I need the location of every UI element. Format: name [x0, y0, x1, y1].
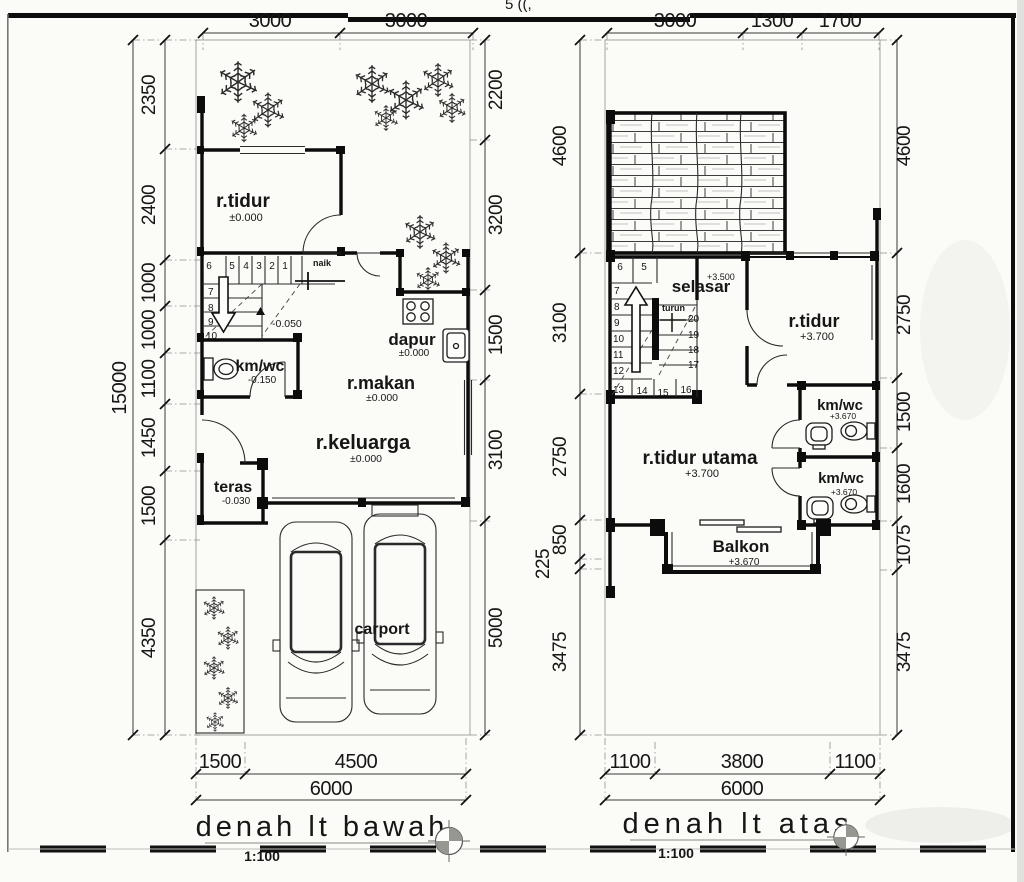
room-level: -0.150	[248, 375, 277, 386]
cropped-top-text: 5 ((,	[505, 0, 532, 13]
stair-step-number: 13	[613, 385, 625, 396]
dim-label: 3000	[385, 10, 428, 32]
room-label: r.tidur	[788, 311, 839, 331]
stair-step-number: 10	[206, 331, 218, 342]
dim-label: 1450	[139, 418, 160, 458]
stair-step-number: 9	[208, 317, 214, 328]
room-label: dapur	[388, 330, 436, 349]
dim-label-total-width: 6000	[721, 778, 764, 800]
room-level: ±0.000	[366, 392, 398, 404]
stair-step-number: 5	[229, 261, 235, 272]
stair-step-number: 19	[688, 330, 700, 341]
dim-label: 1700	[819, 10, 862, 32]
dim-label: 225	[533, 549, 554, 579]
stair-step-number: 6	[206, 261, 212, 272]
room-level: +3.670	[729, 557, 760, 568]
dim-label: 3000	[249, 10, 292, 32]
scanned-floor-plan-sheet: 5 ((, 3000	[0, 0, 1024, 882]
room-level: ±0.000	[229, 212, 263, 224]
stair-step-number: 1	[282, 261, 288, 272]
room-level: +3.670	[831, 487, 858, 497]
scan-smudge	[920, 240, 1010, 420]
dim-label: 3000	[654, 10, 697, 32]
room-label: carport	[354, 621, 410, 638]
stair-step-number: 11	[613, 350, 624, 361]
room-level: ±0.000	[350, 453, 382, 465]
dim-label-total-width: 6000	[310, 778, 353, 800]
dim-label: 1075	[894, 525, 915, 565]
scan-edge-shadow	[1017, 0, 1024, 882]
stair-step-number: 5	[641, 262, 647, 273]
plan-title: denah lt bawah	[196, 811, 449, 843]
dim-label: 4600	[550, 126, 571, 166]
dim-label: 4500	[335, 751, 378, 773]
stair-step-number: 15	[657, 388, 669, 399]
dim-label: 5000	[486, 608, 507, 648]
dim-label: 1100	[834, 751, 875, 773]
stair-step-number: 3	[256, 261, 262, 272]
stair-step-number: 7	[208, 287, 214, 298]
room-label: km/wc	[818, 470, 864, 487]
plan-scale: 1:100	[658, 845, 694, 861]
stair-step-number: 12	[613, 366, 625, 377]
room-label: km/wc	[236, 358, 285, 375]
dim-label: 1600	[894, 464, 915, 504]
room-label: r.keluarga	[316, 432, 411, 454]
room-level: +3.700	[685, 468, 719, 480]
stair-step-number: 6	[617, 262, 623, 273]
dim-label: 2750	[550, 437, 571, 477]
stair-step-number: 7	[614, 286, 620, 297]
dim-label: 3100	[486, 430, 507, 470]
room-level: ±0.000	[399, 348, 430, 359]
roof-hatch	[608, 113, 785, 253]
dim-label: 3200	[486, 195, 507, 235]
dim-label: 1100	[609, 751, 650, 773]
room-level: +3.700	[800, 331, 834, 343]
room-label: teras	[214, 479, 252, 496]
dim-label: 1500	[486, 315, 507, 355]
stair-step-number: 10	[613, 334, 625, 345]
plan-scale: 1:100	[244, 848, 280, 864]
dim-label: 3475	[550, 632, 571, 672]
dim-label: 1000	[139, 263, 160, 303]
level-label: -0.050	[272, 318, 302, 330]
dim-label: 2350	[139, 75, 160, 115]
dim-label: 3800	[721, 751, 764, 773]
room-label: Balkon	[713, 537, 770, 556]
stair-step-number: 18	[688, 345, 700, 356]
dim-label: 1500	[139, 486, 160, 526]
stair-direction-label: turun	[662, 303, 685, 313]
room-level: -0.030	[222, 496, 251, 507]
stair-step-number: 2	[269, 261, 275, 272]
room-level: +3.670	[830, 411, 857, 421]
dim-label: 3100	[550, 303, 571, 343]
dim-label: 2400	[139, 185, 160, 225]
dim-label: 1300	[751, 10, 794, 32]
room-label: r.tidur utama	[642, 448, 758, 469]
stair-step-number: 17	[688, 360, 700, 371]
floor-plan-drawing: 5 ((, 3000	[0, 0, 1024, 882]
stair-step-number: 20	[688, 314, 700, 325]
dim-label: 2200	[486, 70, 507, 110]
plan-title: denah lt atas	[622, 808, 853, 840]
sliding-door-leaf	[700, 520, 744, 525]
dim-label: 3475	[894, 632, 915, 672]
room-label: r.tidur	[216, 191, 270, 212]
stair-step-number: 4	[243, 261, 249, 272]
stair-step-number: 8	[208, 303, 214, 314]
dim-label: 1500	[199, 751, 242, 773]
dim-label: 4350	[139, 618, 160, 658]
dim-label: 4600	[894, 126, 915, 166]
dim-label: 1000	[139, 310, 160, 350]
dim-label: 1500	[894, 392, 915, 432]
dim-label-total-height: 15000	[109, 361, 131, 414]
stair-step-number: 9	[614, 318, 620, 329]
stair-step-number: 16	[680, 385, 692, 396]
kmwc-fixtures	[204, 358, 238, 380]
room-label: r.makan	[347, 373, 415, 393]
scan-smudge	[865, 807, 1015, 843]
stair-step-number: 14	[636, 386, 648, 397]
sliding-door-leaf	[737, 527, 781, 532]
dim-label: 1100	[139, 360, 160, 399]
stair-step-number: 8	[614, 302, 620, 313]
room-label: selasar	[672, 277, 731, 296]
dim-label: 2750	[894, 295, 915, 335]
stair-direction-label: naik	[313, 258, 332, 268]
